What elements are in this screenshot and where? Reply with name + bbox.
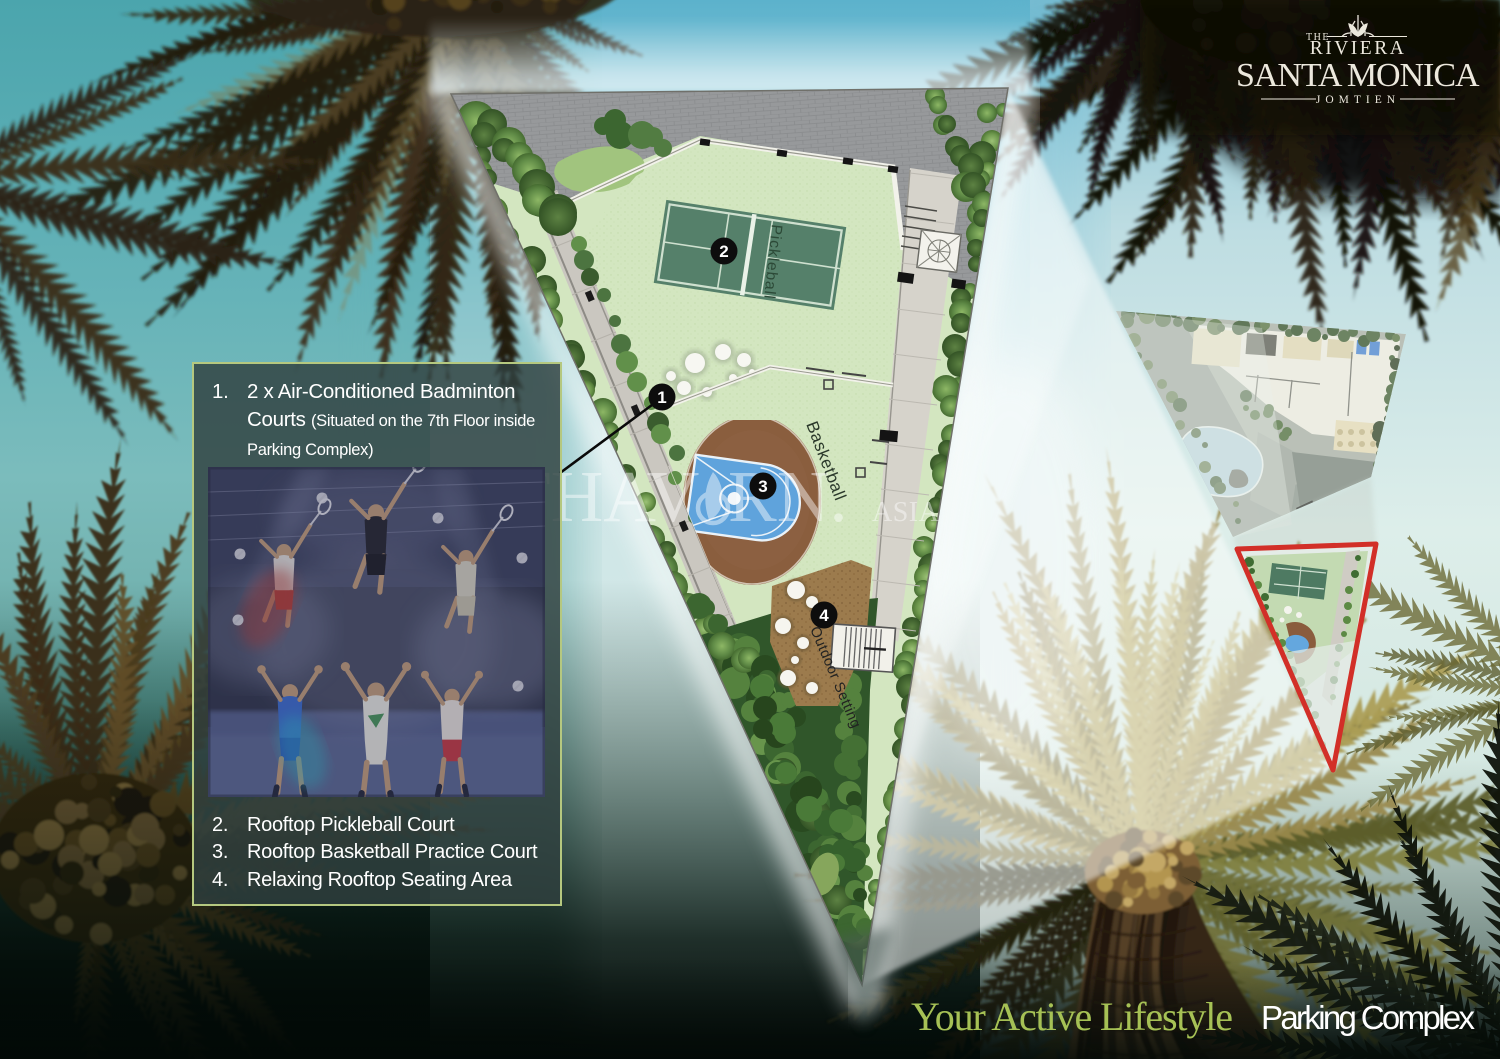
svg-text:4: 4	[819, 606, 829, 625]
svg-text:RIVIERA: RIVIERA	[1310, 38, 1407, 59]
svg-text:RN.: RN.	[728, 456, 848, 537]
svg-text:2: 2	[719, 242, 728, 261]
svg-text:ASIA: ASIA	[872, 497, 940, 528]
svg-text:SANTA MONICA: SANTA MONICA	[1236, 57, 1480, 94]
svg-text:1: 1	[657, 388, 666, 407]
svg-text:JOMTIEN: JOMTIEN	[1316, 94, 1400, 106]
svg-text:Your Active Lifestyle: Your Active Lifestyle	[911, 994, 1233, 1039]
svg-text:Parking Complex: Parking Complex	[1261, 999, 1476, 1036]
svg-text:3: 3	[758, 477, 767, 496]
